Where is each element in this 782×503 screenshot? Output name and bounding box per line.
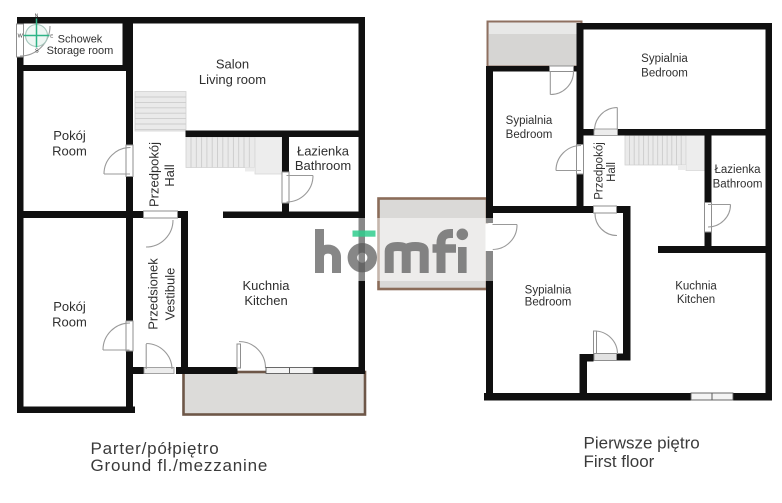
svg-text:S: S bbox=[35, 49, 39, 55]
svg-text:Ground fl./mezzanine: Ground fl./mezzanine bbox=[91, 456, 269, 475]
svg-text:Schowek: Schowek bbox=[58, 33, 103, 45]
svg-text:Bathroom: Bathroom bbox=[713, 179, 763, 191]
svg-text:Vestibule: Vestibule bbox=[163, 268, 178, 321]
svg-text:E: E bbox=[50, 33, 53, 38]
svg-text:Przedpokój: Przedpokój bbox=[147, 142, 162, 207]
svg-text:Pierwsze piętro: Pierwsze piętro bbox=[584, 433, 700, 452]
svg-text:Sypialnia: Sypialnia bbox=[641, 53, 688, 65]
svg-text:N: N bbox=[35, 14, 39, 20]
svg-text:Storage room: Storage room bbox=[47, 45, 114, 57]
svg-text:Kitchen: Kitchen bbox=[677, 294, 715, 306]
svg-text:Bedroom: Bedroom bbox=[525, 297, 572, 309]
svg-text:Pokój: Pokój bbox=[53, 128, 86, 143]
svg-text:Łazienka: Łazienka bbox=[714, 164, 761, 176]
svg-text:Sypialnia: Sypialnia bbox=[506, 115, 553, 127]
svg-text:Kitchen: Kitchen bbox=[244, 293, 287, 308]
svg-text:Przedsionek: Przedsionek bbox=[146, 258, 161, 330]
svg-text:Salon: Salon bbox=[216, 57, 249, 72]
svg-text:Living room: Living room bbox=[199, 72, 266, 87]
svg-text:W: W bbox=[18, 34, 24, 40]
svg-text:Bathroom: Bathroom bbox=[295, 158, 351, 173]
svg-text:Kuchnia: Kuchnia bbox=[243, 278, 291, 293]
svg-text:First floor: First floor bbox=[584, 452, 655, 471]
svg-text:Sypialnia: Sypialnia bbox=[525, 285, 572, 297]
svg-text:Room: Room bbox=[52, 144, 87, 159]
svg-text:Hall: Hall bbox=[162, 164, 177, 187]
svg-text:Łazienka: Łazienka bbox=[297, 144, 350, 159]
svg-text:Pokój: Pokój bbox=[53, 299, 86, 314]
svg-text:Hall: Hall bbox=[606, 162, 618, 182]
svg-text:Kuchnia: Kuchnia bbox=[675, 280, 717, 292]
svg-text:Bedroom: Bedroom bbox=[641, 67, 688, 79]
svg-text:Room: Room bbox=[52, 315, 87, 330]
svg-text:Bedroom: Bedroom bbox=[506, 129, 553, 141]
svg-text:Przedpokój: Przedpokój bbox=[594, 142, 606, 200]
